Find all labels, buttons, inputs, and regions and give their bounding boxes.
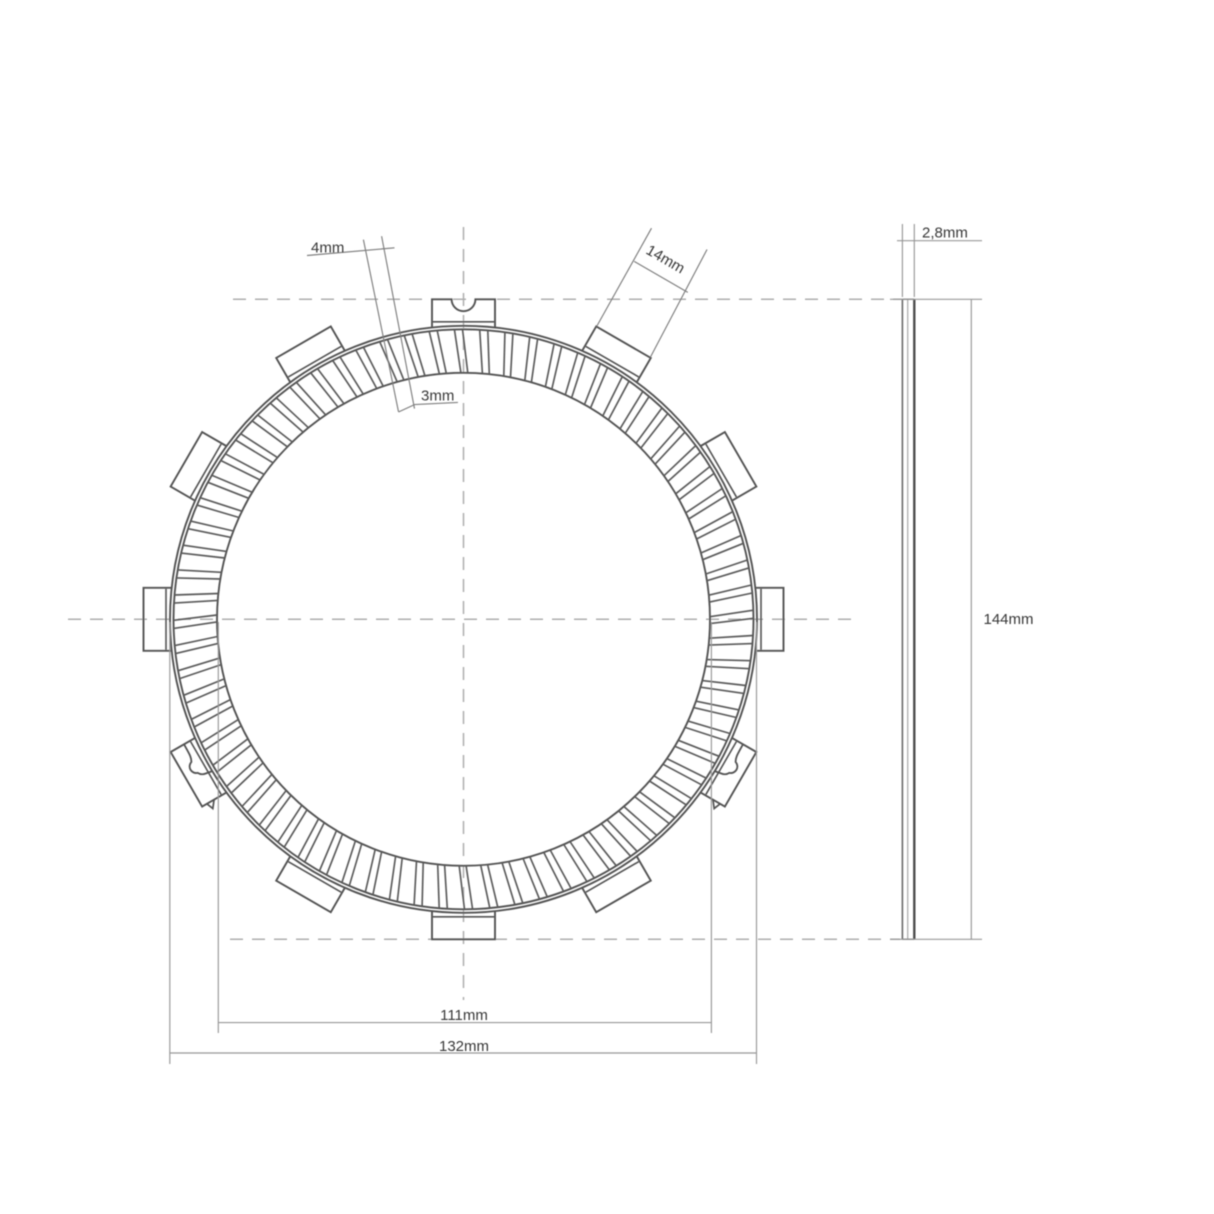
svg-text:144mm: 144mm — [984, 611, 1034, 628]
svg-text:3mm: 3mm — [421, 388, 454, 405]
svg-text:132mm: 132mm — [439, 1038, 489, 1055]
svg-text:111mm: 111mm — [440, 1007, 488, 1024]
svg-text:2,8mm: 2,8mm — [922, 225, 968, 242]
svg-text:4mm: 4mm — [311, 240, 344, 257]
